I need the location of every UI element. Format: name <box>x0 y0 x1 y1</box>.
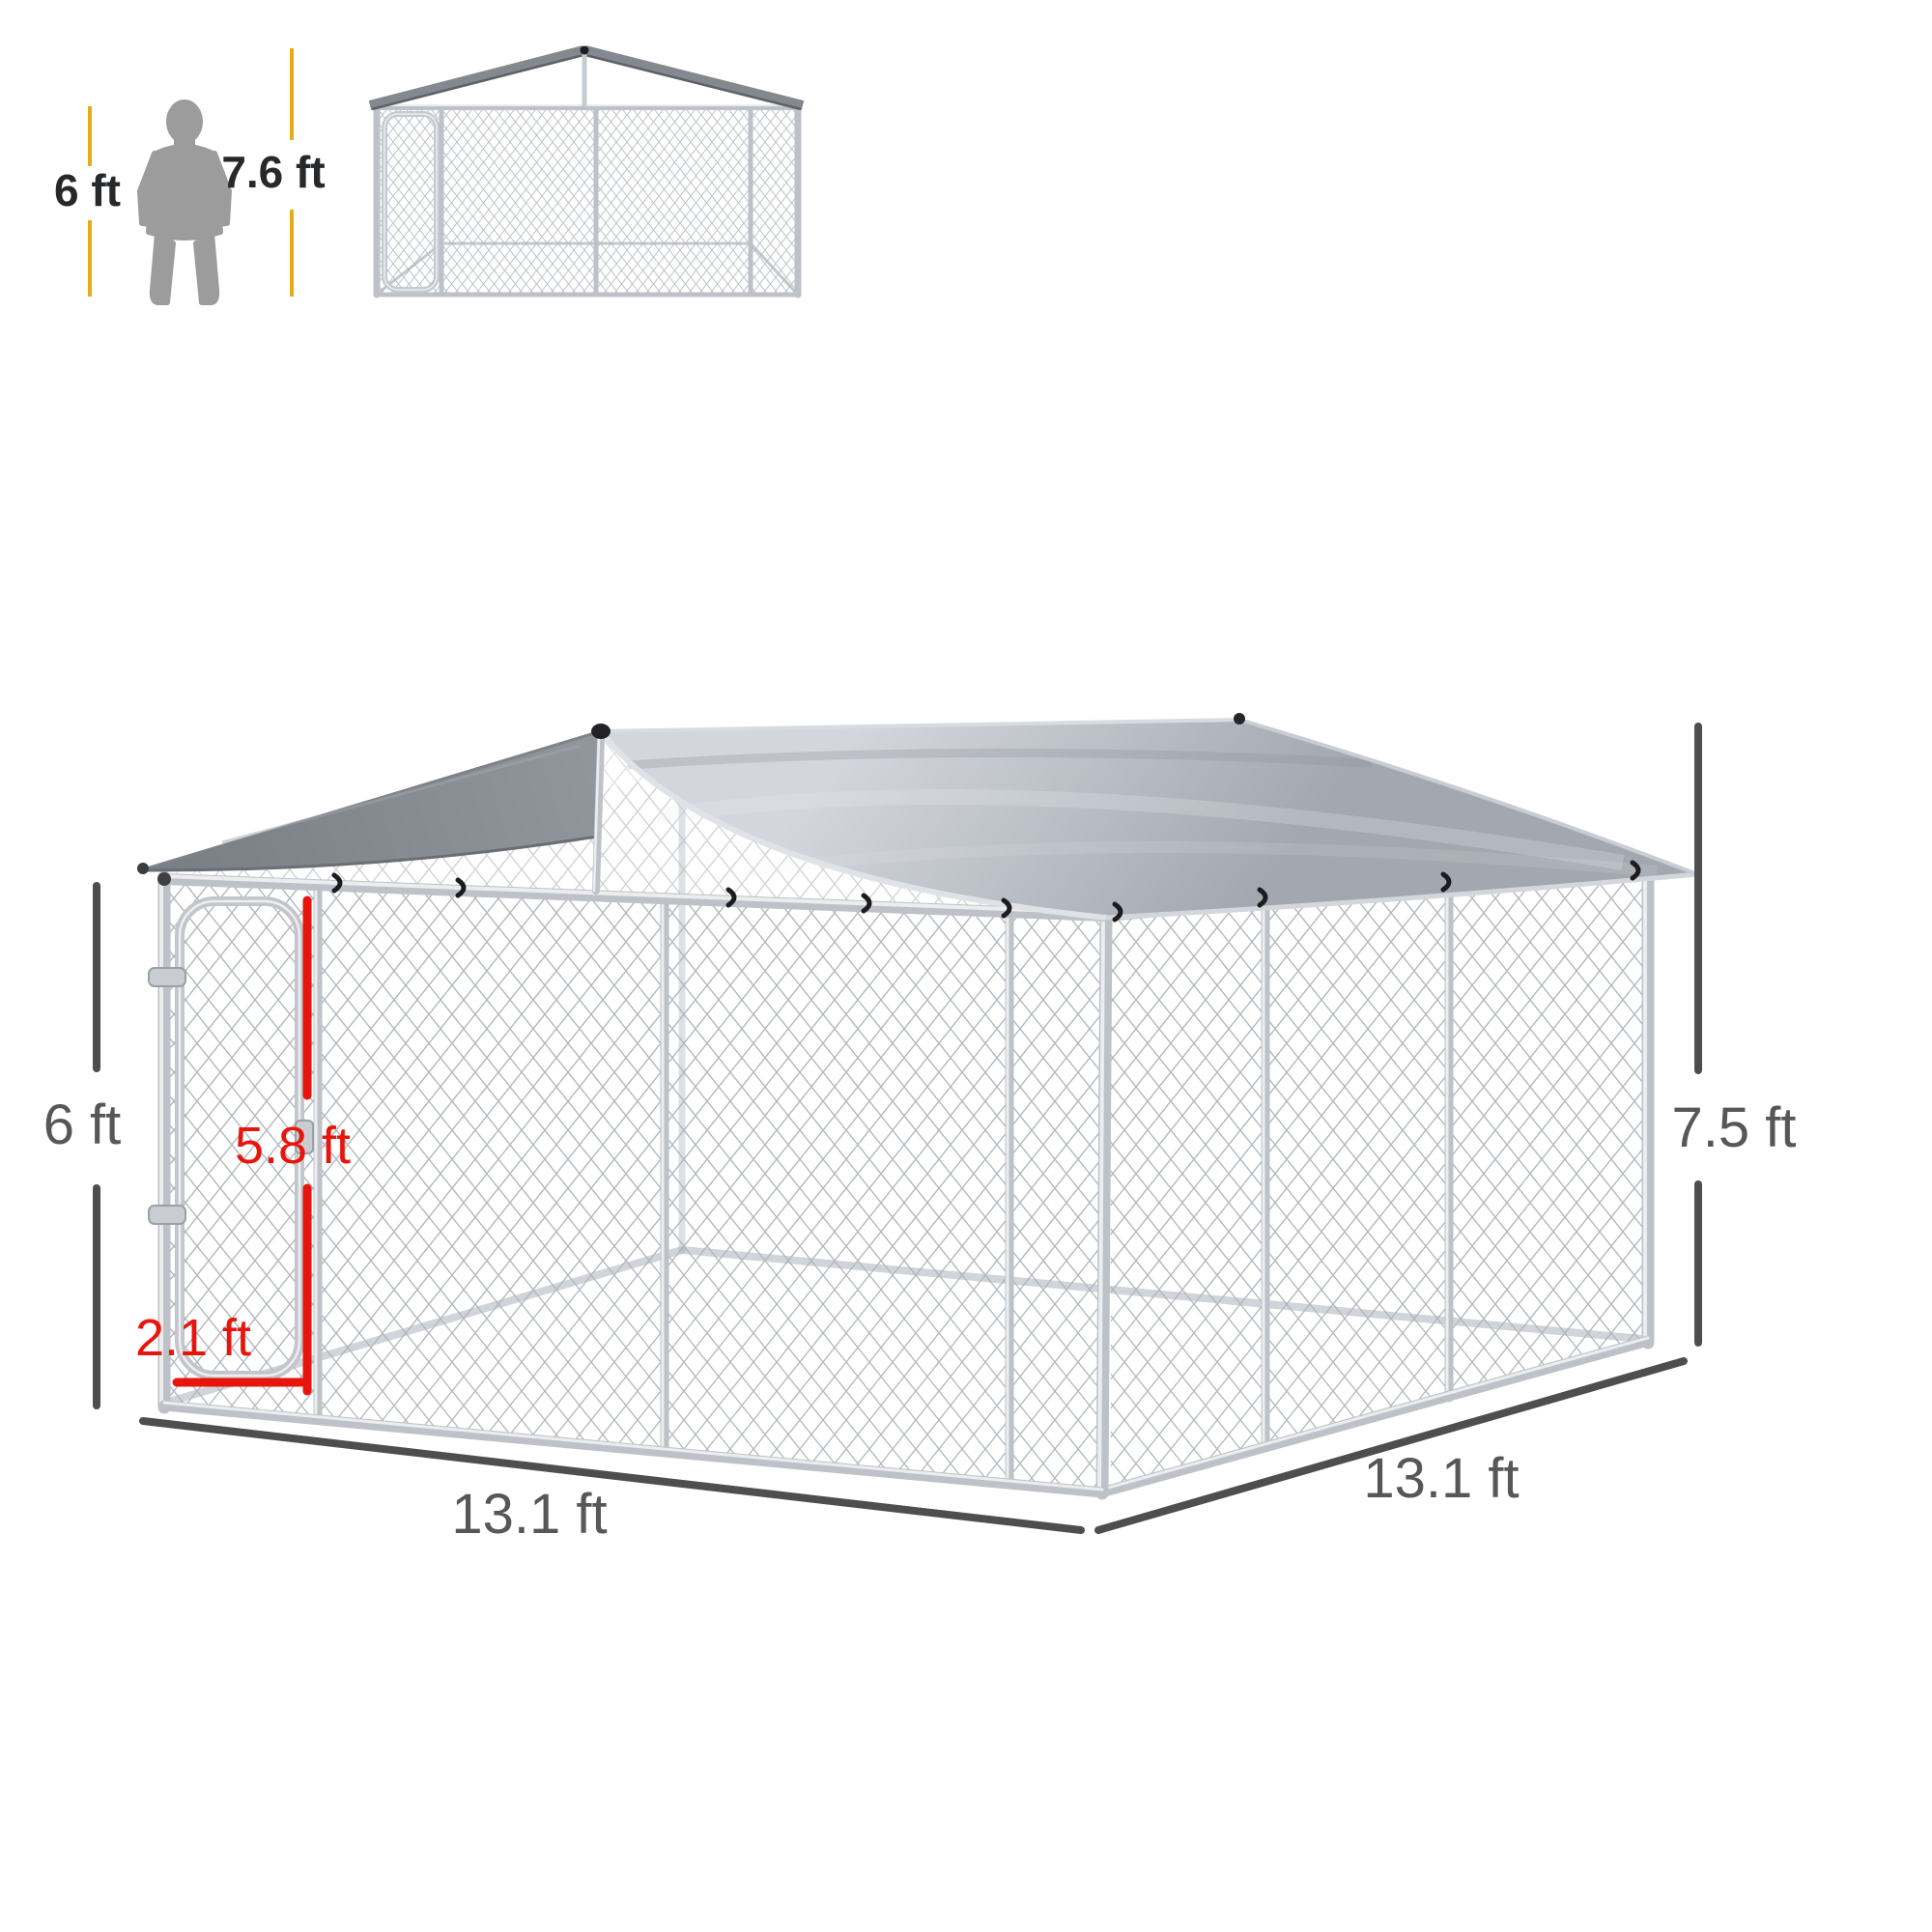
kennel-isometric-illustration <box>137 713 1697 1493</box>
door-hinge <box>149 968 185 986</box>
roof-front-peak-cap <box>591 724 611 739</box>
person-silhouette <box>140 102 229 302</box>
peak-height-label: 7.6 ft <box>196 150 351 194</box>
door-width-label: 2.1 ft <box>77 1312 309 1364</box>
front-width-label: 13.1 ft <box>384 1487 674 1543</box>
thumbnail-gable-roof <box>370 46 803 110</box>
roof-rear-peak-cap <box>1234 713 1245 724</box>
person-height-label: 6 ft <box>14 168 121 213</box>
overall-height-label: 7.5 ft <box>1613 1100 1855 1156</box>
product-dimension-diagram: 6 ft 7.6 ft 6 ft 5.8 ft 2.1 ft 13.1 ft 1… <box>0 0 1932 1932</box>
kennel-front-view-thumbnail <box>370 46 803 296</box>
thumbnail-peak-cap <box>581 46 589 55</box>
corner-post-cap <box>157 872 171 886</box>
wall-height-label: 6 ft <box>10 1097 155 1153</box>
diagram-artwork <box>0 0 1932 1932</box>
door-height-label: 5.8 ft <box>177 1120 409 1172</box>
roof-west-eave-cap <box>137 863 149 874</box>
door-hinge <box>149 1206 185 1224</box>
kennel-front-wall <box>149 872 1106 1493</box>
side-depth-label: 13.1 ft <box>1296 1451 1586 1507</box>
